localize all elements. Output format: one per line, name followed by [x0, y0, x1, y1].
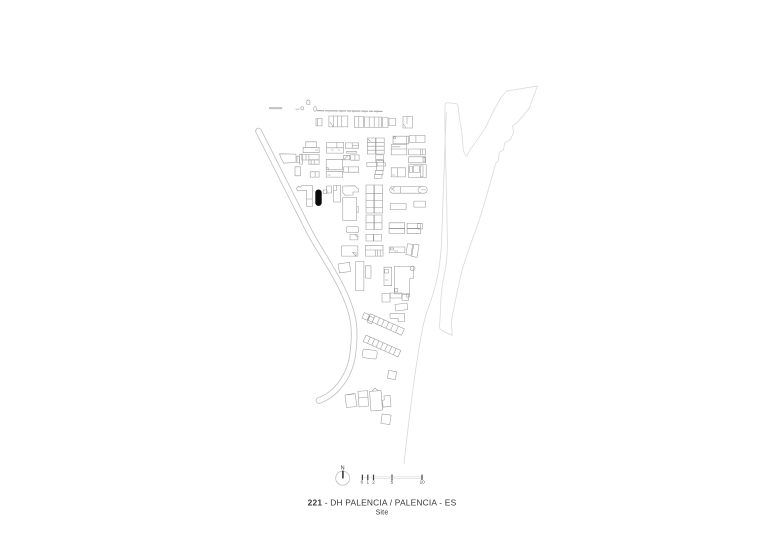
svg-text:10: 10 — [420, 480, 426, 485]
svg-text:1: 1 — [367, 480, 370, 485]
svg-text:221 - DH PALENCIA / PALENCIA -: 221 - DH PALENCIA / PALENCIA - ES — [308, 498, 457, 508]
svg-text:0: 0 — [361, 480, 364, 485]
svg-text:2: 2 — [372, 480, 375, 485]
svg-text:Site: Site — [376, 509, 389, 516]
svg-text:5: 5 — [391, 480, 394, 485]
